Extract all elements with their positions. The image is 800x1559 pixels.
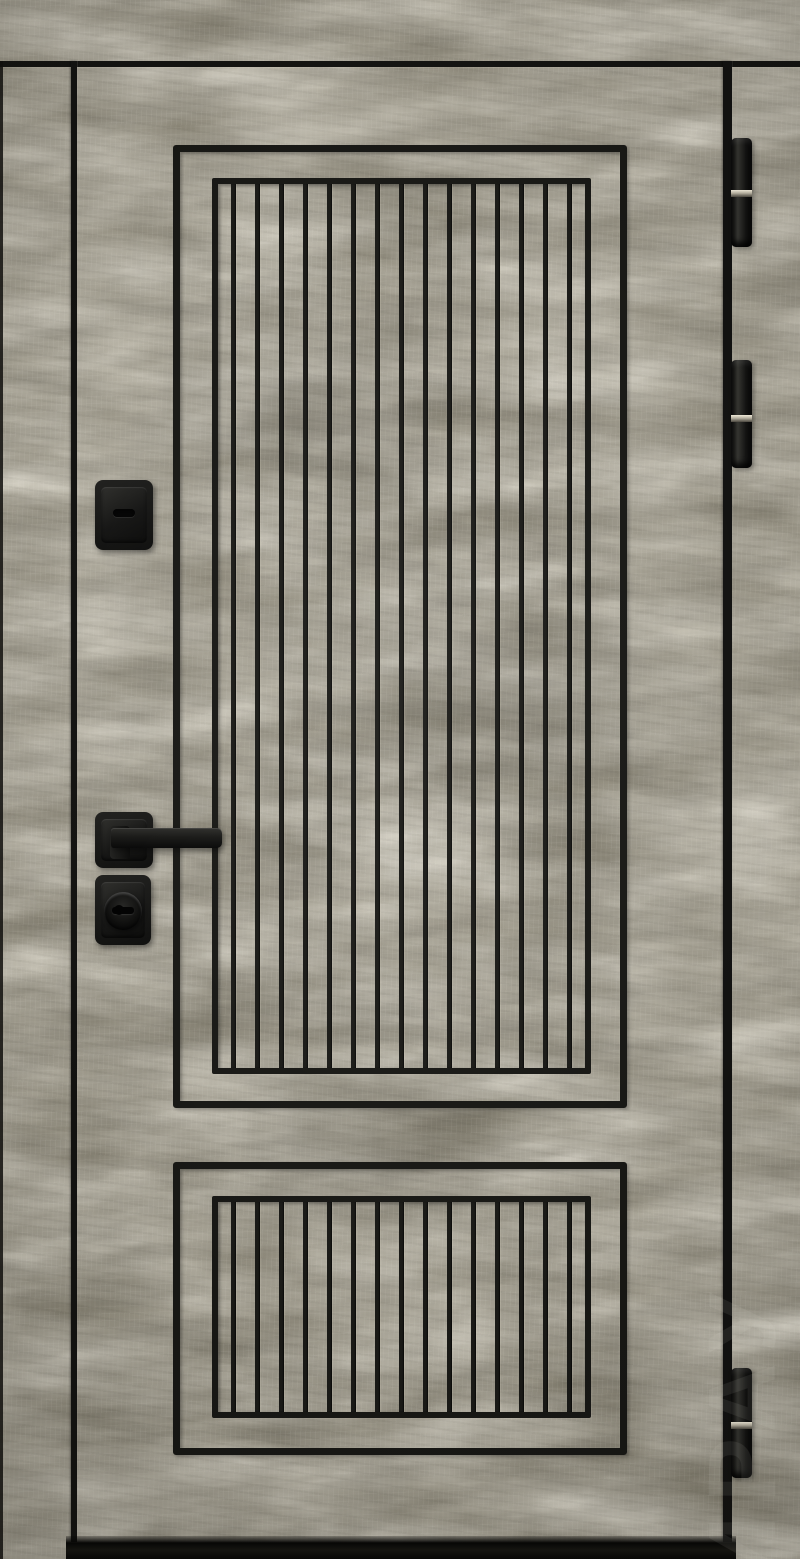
door-leaf-right-edge xyxy=(723,61,732,1542)
slat xyxy=(423,1202,428,1412)
slat xyxy=(567,1202,572,1412)
hinge-top xyxy=(731,138,752,247)
thumbturn-slot xyxy=(113,509,135,517)
hinge-middle xyxy=(731,360,752,468)
slat xyxy=(495,184,500,1068)
slat xyxy=(303,184,308,1068)
slat xyxy=(231,184,236,1068)
slat xyxy=(279,184,284,1068)
slat xyxy=(543,1202,548,1412)
slat xyxy=(303,1202,308,1412)
slat xyxy=(351,184,356,1068)
lower-panel-slat-box xyxy=(212,1196,591,1418)
slat xyxy=(519,1202,524,1412)
door-leaf-left-edge xyxy=(71,61,77,1542)
slat xyxy=(423,184,428,1068)
slat xyxy=(471,184,476,1068)
slat xyxy=(327,1202,332,1412)
slat xyxy=(519,184,524,1068)
slat xyxy=(447,184,452,1068)
thumbturn-escutcheon xyxy=(95,480,153,550)
keyhole-icon xyxy=(112,907,134,914)
casing-left-edge xyxy=(0,61,3,1559)
slat xyxy=(567,184,572,1068)
slat xyxy=(375,184,380,1068)
slat xyxy=(399,1202,404,1412)
slat xyxy=(375,1202,380,1412)
hinge-bottom xyxy=(731,1368,752,1478)
door-frame-top-line xyxy=(0,61,800,67)
slat xyxy=(471,1202,476,1412)
slat xyxy=(279,1202,284,1412)
slat xyxy=(351,1202,356,1412)
hinge-ring xyxy=(731,190,752,197)
slat xyxy=(255,1202,260,1412)
slat xyxy=(327,184,332,1068)
door-threshold-shadow xyxy=(66,1536,736,1559)
slat xyxy=(231,1202,236,1412)
door-product-photo: ИРАУ xyxy=(0,0,800,1559)
slat xyxy=(543,184,548,1068)
hinge-ring xyxy=(731,415,752,422)
slat xyxy=(495,1202,500,1412)
slat xyxy=(255,184,260,1068)
slat xyxy=(447,1202,452,1412)
upper-panel-slat-box xyxy=(212,178,591,1074)
hinge-ring xyxy=(731,1422,752,1429)
slat xyxy=(399,184,404,1068)
lever-handle xyxy=(111,828,222,848)
